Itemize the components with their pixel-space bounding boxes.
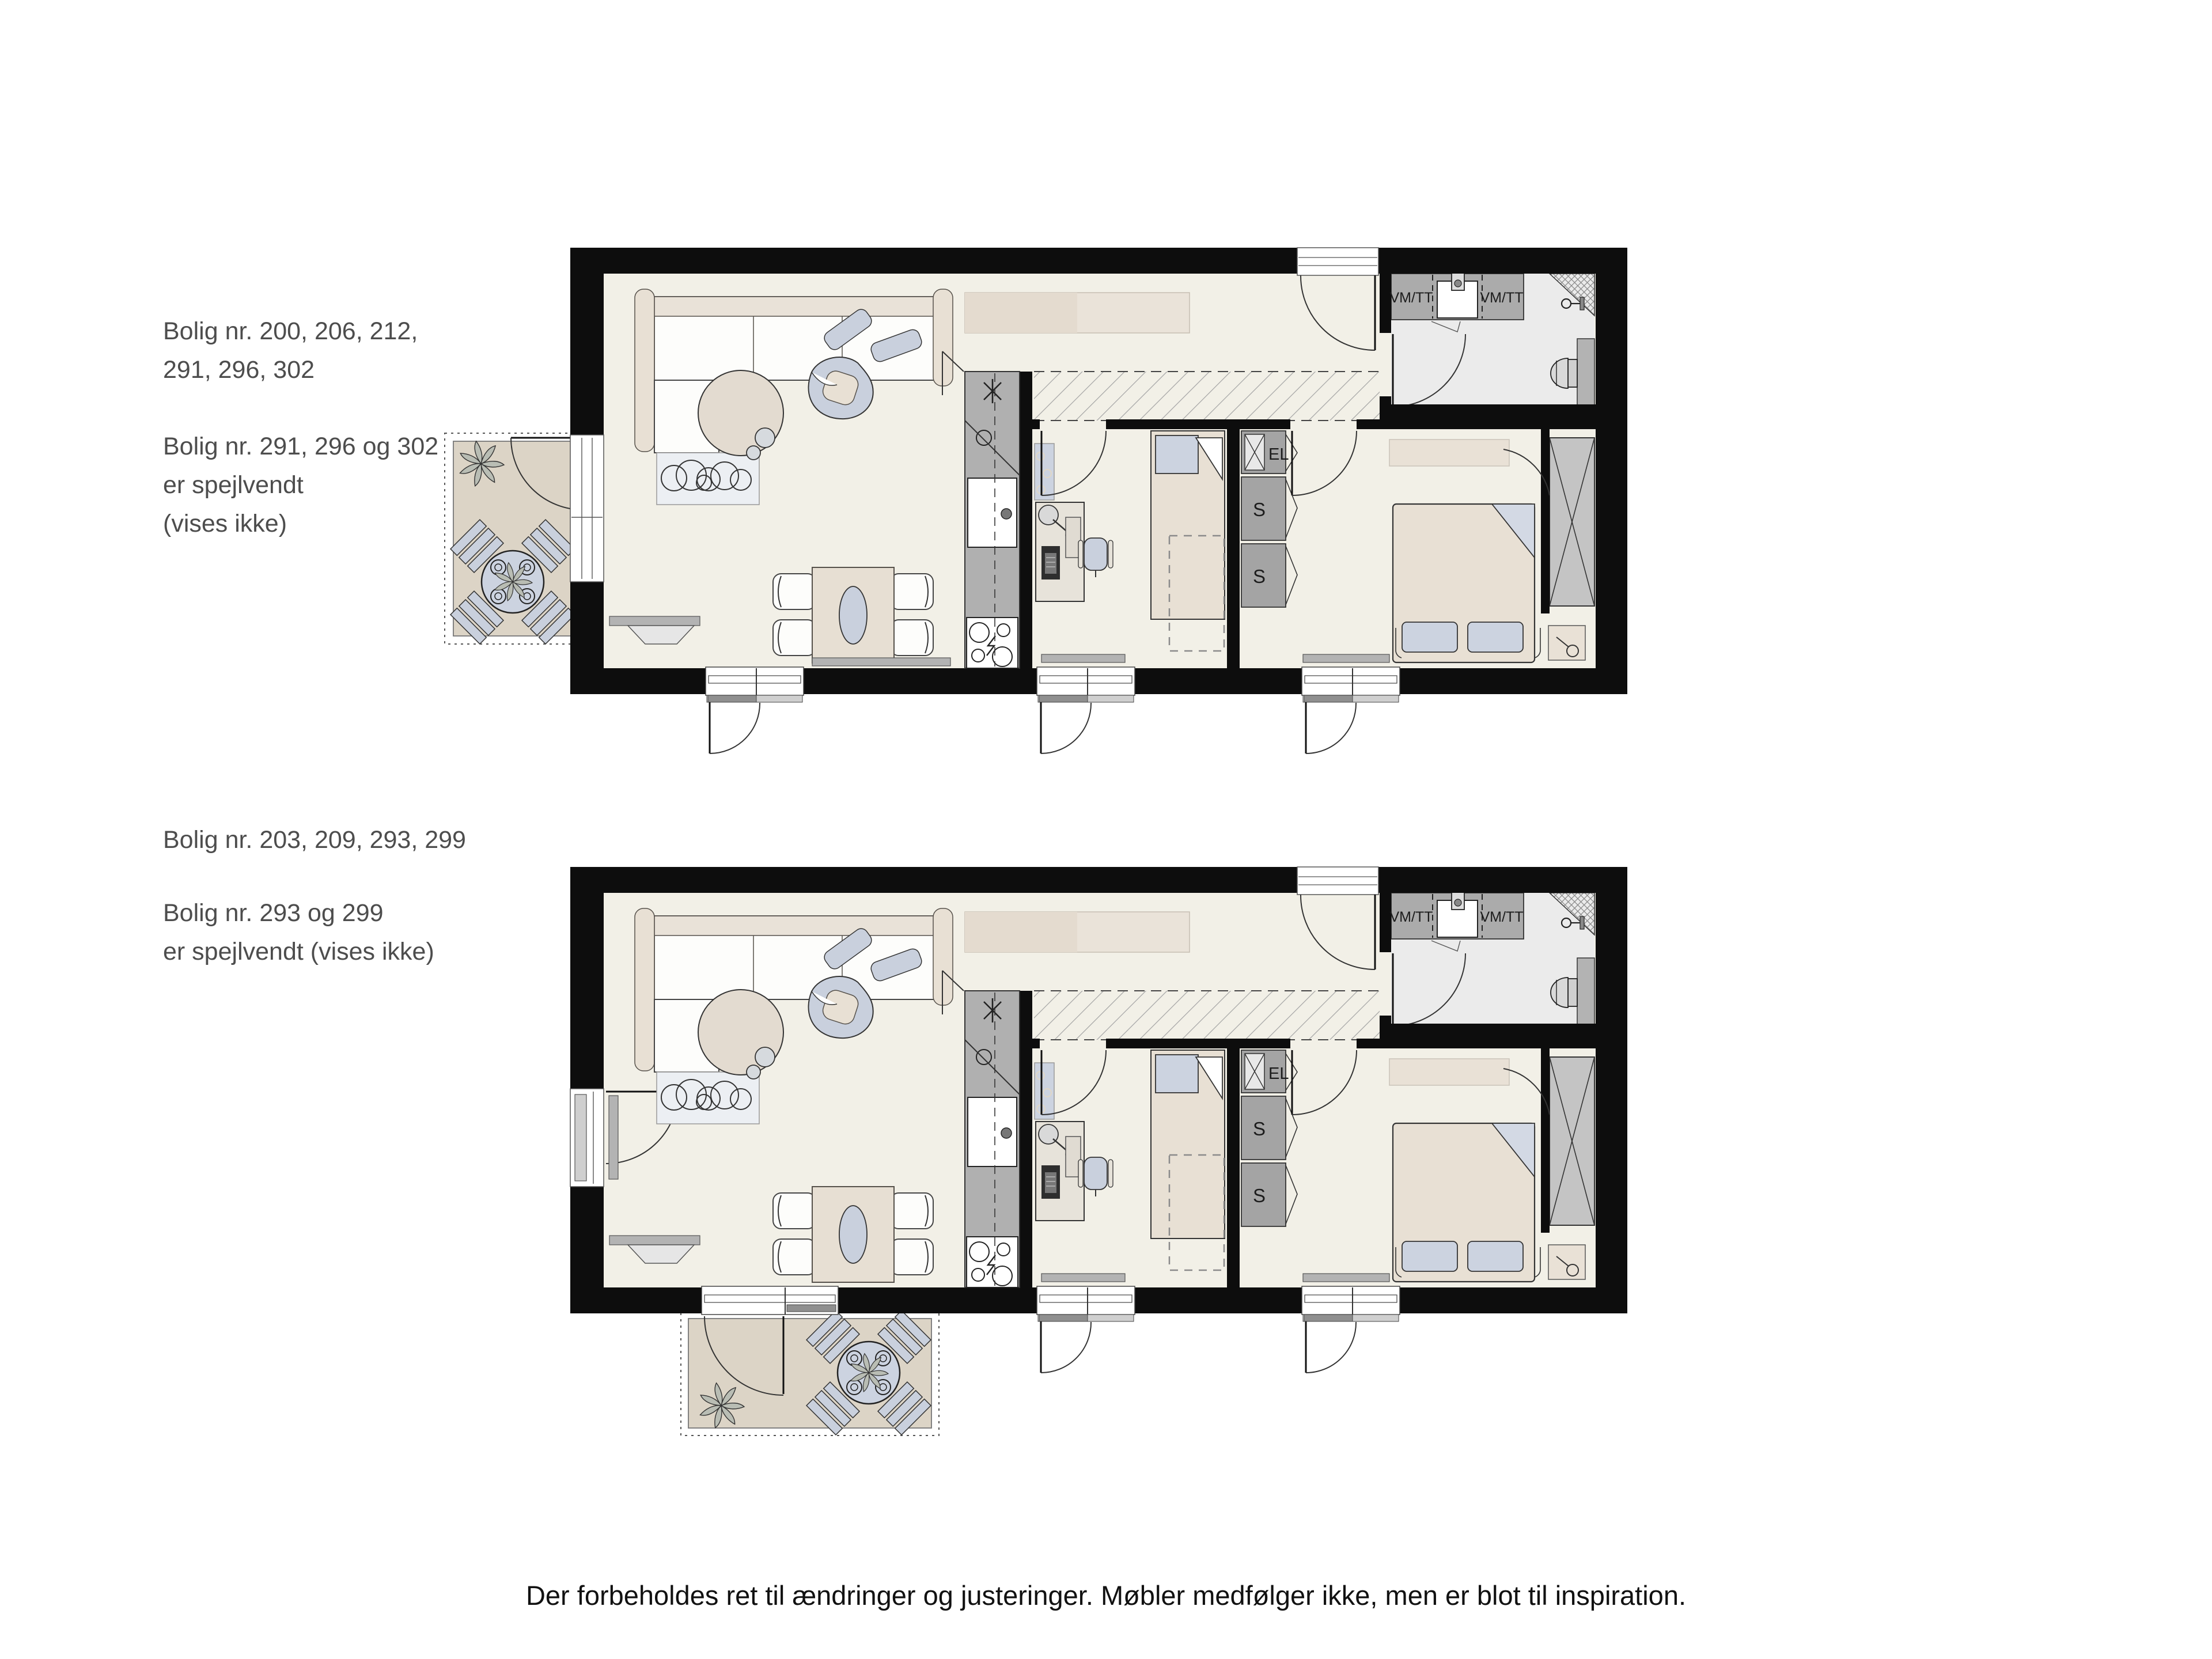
- plan1-balcony-door: [570, 435, 604, 582]
- plan2-washer-label-left: VM/TT: [1390, 909, 1433, 925]
- floorplan-1: VM/TT VM/TT EL S S: [445, 248, 1627, 753]
- plan1-entry-corridor: [1034, 372, 1380, 421]
- plan1-balcony: [445, 433, 583, 644]
- plan2-window-room2: [1037, 1286, 1135, 1373]
- plan1-window-bedroom: [1302, 667, 1400, 753]
- plan2-closet-label-1: S: [1253, 1118, 1266, 1139]
- plan1-washer-label-left: VM/TT: [1390, 290, 1433, 306]
- plan1-closet-label-1: S: [1253, 499, 1266, 520]
- plan2-window-bedroom: [1302, 1286, 1400, 1373]
- plan2-entry-corridor: [1034, 991, 1380, 1040]
- plan2-washer-label-right: VM/TT: [1480, 909, 1524, 925]
- plan2-closet-label-2: S: [1253, 1185, 1266, 1206]
- plan1-radiator-living: [812, 658, 950, 666]
- plan1-el-label: EL: [1268, 445, 1289, 464]
- plan2-el-label: EL: [1268, 1065, 1289, 1083]
- plan2-terrace: [681, 1310, 939, 1435]
- floor-plans-svg: VM/TT VM/TT EL S S: [0, 0, 2212, 1659]
- floorplan-2: VM/TT VM/TT EL S S: [570, 867, 1627, 1435]
- floorplan-page: { "annotations": { "plan1": ["Bolig nr. …: [0, 0, 2212, 1659]
- plan1-window-living: [706, 667, 804, 753]
- plan2-terrace-door: [702, 1286, 838, 1315]
- plan1-window-room2: [1037, 667, 1135, 753]
- plan1-washer-label-right: VM/TT: [1480, 290, 1524, 306]
- plan1-closet-label-2: S: [1253, 566, 1266, 587]
